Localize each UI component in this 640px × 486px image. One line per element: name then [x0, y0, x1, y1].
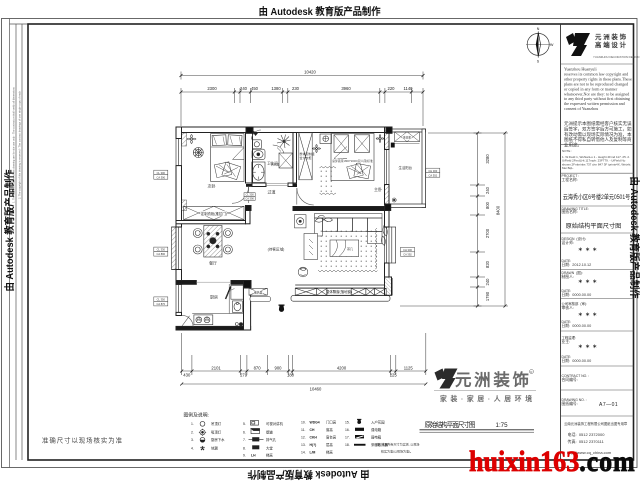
svg-text:可视对讲机: 可视对讲机: [266, 421, 284, 426]
svg-text:900: 900: [275, 366, 283, 371]
svg-text:散热器: 散热器: [254, 290, 263, 294]
svg-text:茶几: 茶几: [347, 246, 353, 251]
svg-text:240: 240: [485, 278, 490, 286]
svg-text:N: N: [537, 27, 540, 31]
svg-text:S: S: [537, 60, 540, 64]
svg-text:6.: 6.: [243, 431, 246, 435]
svg-text:12.: 12.: [301, 436, 306, 440]
svg-text:家装·家居·人居环境: 家装·家居·人居环境: [440, 394, 532, 403]
svg-text:10.: 10.: [301, 421, 306, 425]
svg-text:CA 392: CA 392: [429, 173, 438, 177]
svg-text:CA 390: CA 390: [245, 197, 254, 201]
svg-text:LH: LH: [251, 454, 256, 458]
svg-text:11.: 11.: [301, 428, 306, 432]
svg-text:1140: 1140: [403, 86, 413, 91]
svg-text:次卧: 次卧: [208, 183, 216, 189]
svg-text:卫生间: 卫生间: [267, 161, 278, 166]
svg-text:厨房下水: 厨房下水: [211, 437, 225, 442]
svg-text:17.: 17.: [345, 436, 350, 440]
svg-text:1:75: 1:75: [496, 422, 509, 429]
svg-text:梯高: 梯高: [266, 453, 273, 458]
svg-text:弱电箱: 弱电箱: [371, 435, 382, 440]
svg-text:18.: 18.: [345, 443, 350, 447]
svg-text:450: 450: [251, 86, 259, 91]
svg-text:生活阳台: 生活阳台: [399, 165, 413, 170]
svg-text:5.: 5.: [243, 422, 246, 426]
svg-text:1380: 1380: [271, 86, 281, 91]
svg-text:CL 300: CL 300: [157, 171, 166, 175]
svg-text:CA 390: CA 390: [157, 175, 166, 179]
svg-text:3.: 3.: [191, 438, 194, 442]
svg-text:820: 820: [485, 260, 490, 268]
svg-text:层高: 层高: [326, 442, 333, 447]
svg-text:厨房: 厨房: [210, 294, 218, 300]
svg-text:核实为准(以现场为准)。: 核实为准(以现场为准)。: [381, 449, 413, 454]
svg-text:整体飘窗(落地窗): 整体飘窗(落地窗): [326, 289, 352, 294]
svg-text:原始结构平面尺寸图: 原始结构平面尺寸图: [425, 420, 476, 429]
svg-text:排气孔: 排气孔: [266, 437, 277, 442]
svg-text:CH: CH: [310, 428, 315, 432]
svg-text:CH 300: CH 300: [428, 169, 437, 173]
svg-text:2300: 2300: [207, 86, 217, 91]
svg-text:3280: 3280: [485, 154, 490, 164]
svg-text:180: 180: [287, 373, 295, 378]
svg-text:W: W: [550, 43, 554, 47]
svg-text:席梦思床1800*2000(双人床)标准: 席梦思床1800*2000(双人床)标准: [332, 159, 373, 163]
svg-text:8.: 8.: [243, 447, 246, 451]
svg-text:4.: 4.: [191, 447, 194, 451]
svg-text:800: 800: [485, 201, 490, 209]
svg-text:餐厅: 餐厅: [209, 260, 217, 266]
svg-text:CL 300: CL 300: [245, 193, 254, 197]
svg-text:L/M: L/M: [310, 451, 316, 455]
svg-text:CA 870: CA 870: [157, 302, 166, 306]
svg-text:烟道: 烟道: [266, 430, 273, 435]
svg-text:2700: 2700: [485, 228, 490, 238]
svg-text:9.: 9.: [243, 454, 246, 458]
svg-text:CA 890: CA 890: [157, 252, 166, 256]
svg-text:H(?): H(?): [310, 443, 317, 447]
svg-text:大堂: 大堂: [266, 446, 273, 451]
svg-text:地漏: 地漏: [211, 446, 218, 451]
svg-text:准确尺寸以现场核实为准: 准确尺寸以现场核实为准: [42, 436, 123, 445]
svg-text:10460: 10460: [310, 387, 322, 392]
svg-text:CH 300: CH 300: [403, 248, 412, 252]
svg-text:CKH: CKH: [310, 436, 318, 440]
svg-text:(待客区域): (待客区域): [268, 247, 285, 252]
svg-text:1125: 1125: [404, 366, 414, 371]
svg-text:图例及说明:: 图例及说明:: [184, 412, 209, 419]
svg-text:1.: 1.: [191, 422, 194, 426]
svg-text:16.: 16.: [345, 428, 350, 432]
svg-text:225: 225: [390, 373, 398, 378]
svg-text:4200: 4200: [337, 366, 347, 371]
svg-text:240: 240: [240, 86, 248, 91]
svg-text:220: 220: [388, 86, 396, 91]
svg-text:870: 870: [254, 366, 262, 371]
svg-text:吊顶灯: 吊顶灯: [211, 421, 222, 426]
svg-text:CA 392: CA 392: [403, 252, 412, 256]
svg-text:1790: 1790: [485, 291, 490, 301]
svg-text:279: 279: [240, 373, 248, 378]
svg-text:入户花园: 入户花园: [371, 420, 385, 425]
svg-text:430: 430: [183, 373, 191, 378]
svg-text:CL 350: CL 350: [157, 298, 166, 302]
svg-text:2101: 2101: [211, 366, 221, 371]
svg-text:洗衣机: 洗衣机: [403, 135, 412, 139]
svg-text:定制衣柜(推拉门): 定制衣柜(推拉门): [201, 211, 227, 216]
svg-text:2.: 2.: [191, 431, 194, 435]
svg-text:梯高: 梯高: [326, 450, 333, 455]
svg-text:CL 330: CL 330: [157, 248, 166, 252]
svg-text:门口高: 门口高: [326, 420, 337, 425]
svg-text:14.: 14.: [301, 451, 306, 455]
svg-text:窗高: 窗高: [326, 427, 333, 432]
svg-text:8400: 8400: [496, 205, 501, 215]
svg-text:合大衣柜: 合大衣柜: [300, 155, 312, 160]
svg-text:强电箱: 强电箱: [371, 427, 382, 432]
svg-text:主卧: 主卧: [374, 186, 382, 192]
svg-text:注: 本图所有尺寸为实测, 以现场: 注: 本图所有尺寸为实测, 以现场: [377, 442, 419, 447]
svg-text:窗台高: 窗台高: [326, 435, 337, 440]
svg-text:230: 230: [292, 86, 300, 91]
svg-text:过道: 过道: [268, 189, 276, 195]
svg-text:7.: 7.: [243, 438, 246, 442]
svg-text:15.: 15.: [345, 421, 350, 425]
svg-text:元洲装饰: 元洲装饰: [455, 370, 529, 390]
svg-text:WDG4: WDG4: [310, 421, 320, 425]
svg-text:240: 240: [485, 186, 490, 194]
svg-text:10420: 10420: [304, 70, 316, 75]
svg-text:吸顶灯: 吸顶灯: [211, 430, 222, 435]
svg-text:13.: 13.: [301, 443, 306, 447]
svg-text:2. The copyright of this drawi: 2. The copyright of this drawing is rese…: [18, 90, 22, 199]
svg-text:3960: 3960: [341, 86, 351, 91]
